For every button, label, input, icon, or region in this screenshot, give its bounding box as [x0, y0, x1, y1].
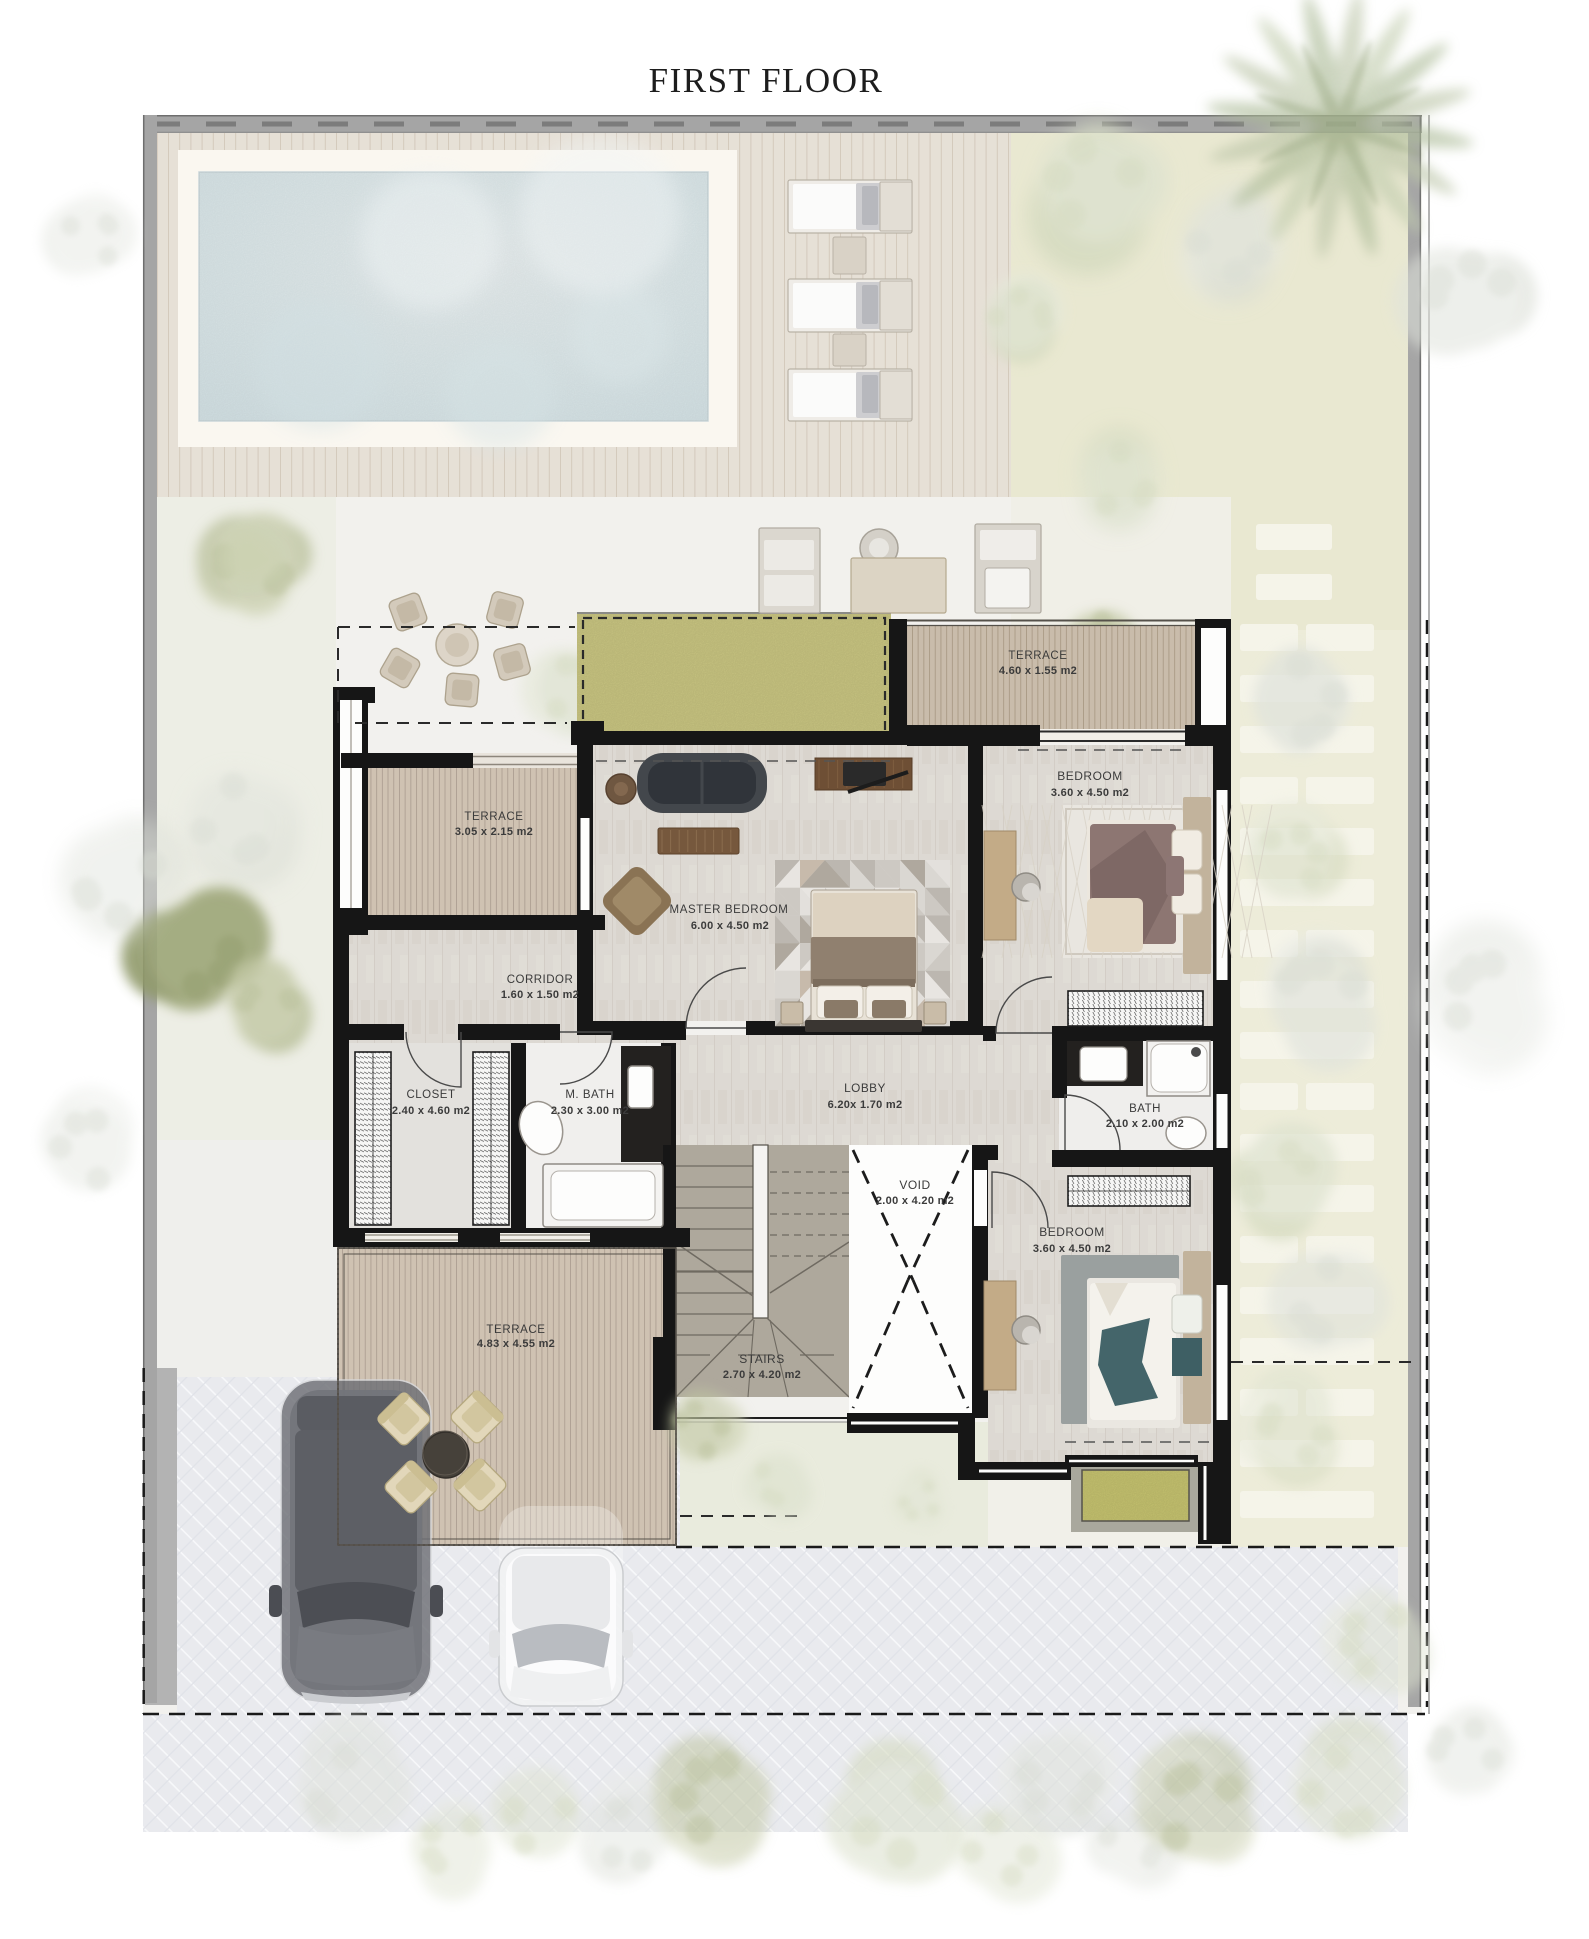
svg-text:BEDROOM: BEDROOM [1039, 1225, 1105, 1239]
svg-text:6.00 x 4.50 m2: 6.00 x 4.50 m2 [691, 920, 769, 932]
svg-text:BATH: BATH [1129, 1103, 1161, 1115]
svg-text:CORRIDOR: CORRIDOR [507, 974, 574, 986]
svg-text:2.00 x 4.20 m2: 2.00 x 4.20 m2 [876, 1195, 954, 1207]
svg-text:MASTER BEDROOM: MASTER BEDROOM [670, 904, 789, 916]
svg-text:TERRACE: TERRACE [464, 811, 523, 823]
svg-text:BEDROOM: BEDROOM [1057, 769, 1123, 783]
svg-text:3.60 x 4.50 m2: 3.60 x 4.50 m2 [1051, 787, 1129, 799]
svg-text:3.60 x 4.50 m2: 3.60 x 4.50 m2 [1033, 1243, 1111, 1255]
svg-text:4.83 x 4.55 m2: 4.83 x 4.55 m2 [477, 1338, 555, 1350]
svg-text:6.20x 1.70 m2: 6.20x 1.70 m2 [828, 1099, 903, 1111]
svg-text:FIRST FLOOR: FIRST FLOOR [649, 61, 884, 100]
svg-text:2.40 x 4.60 m2: 2.40 x 4.60 m2 [392, 1105, 470, 1117]
svg-text:TERRACE: TERRACE [1008, 650, 1067, 662]
svg-text:M. BATH: M. BATH [565, 1089, 614, 1101]
svg-text:2.30 x 3.00 m2: 2.30 x 3.00 m2 [551, 1105, 629, 1117]
svg-text:CLOSET: CLOSET [406, 1089, 455, 1101]
svg-text:STAIRS: STAIRS [739, 1352, 784, 1366]
svg-text:VOID: VOID [899, 1178, 930, 1192]
svg-text:2.70 x 4.20 m2: 2.70 x 4.20 m2 [723, 1369, 801, 1381]
svg-text:3.05 x 2.15 m2: 3.05 x 2.15 m2 [455, 826, 533, 838]
svg-text:2.10 x 2.00 m2: 2.10 x 2.00 m2 [1106, 1118, 1184, 1130]
svg-text:4.60 x 1.55 m2: 4.60 x 1.55 m2 [999, 665, 1077, 677]
svg-text:LOBBY: LOBBY [844, 1081, 886, 1095]
svg-text:TERRACE: TERRACE [486, 1324, 545, 1336]
svg-text:1.60 x 1.50 m2: 1.60 x 1.50 m2 [501, 989, 579, 1001]
